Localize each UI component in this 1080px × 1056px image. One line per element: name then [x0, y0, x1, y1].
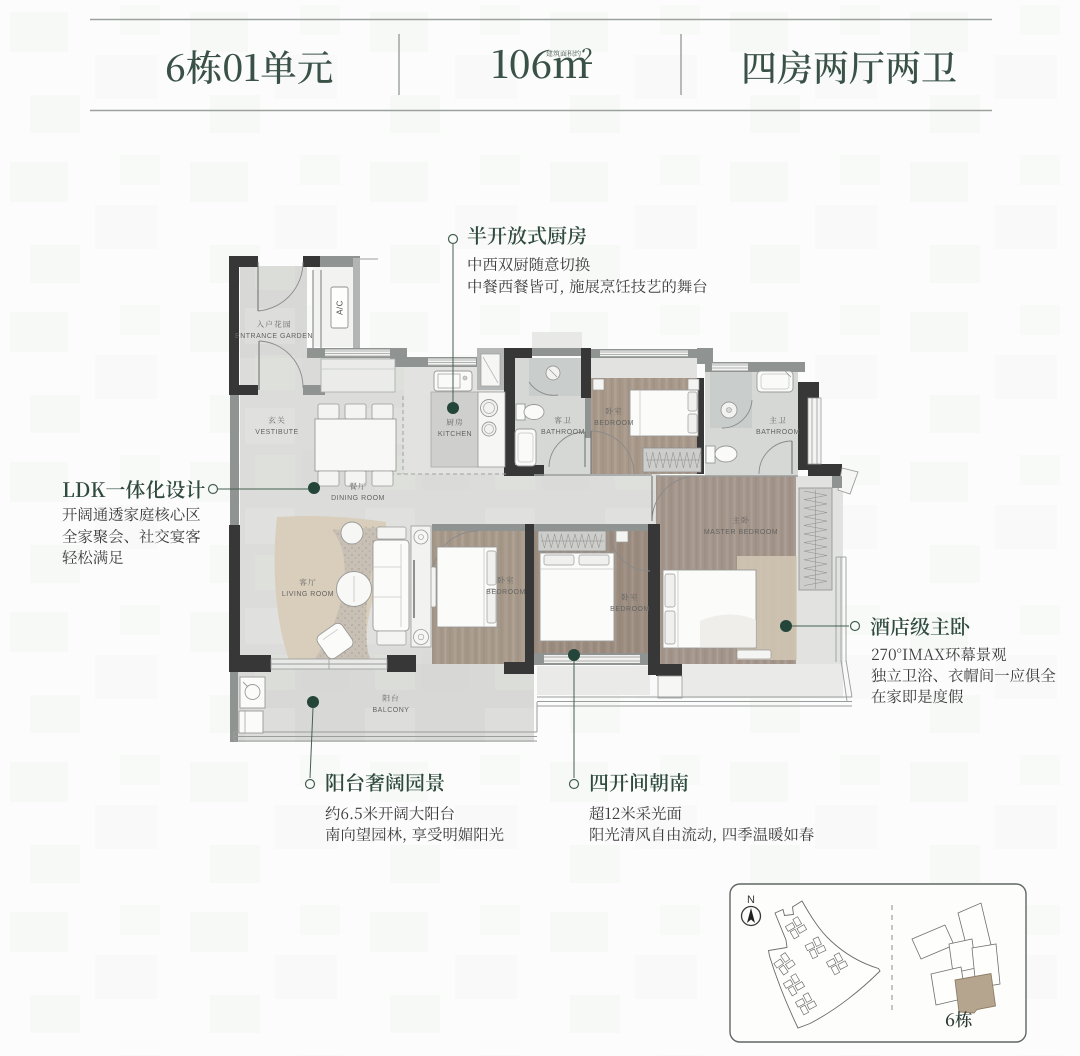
svg-text:BATHROOM: BATHROOM [756, 429, 800, 436]
svg-text:N: N [747, 894, 755, 906]
svg-text:BEDROOM: BEDROOM [486, 589, 526, 596]
svg-text:BEDROOM: BEDROOM [594, 420, 634, 427]
svg-text:BEDROOM: BEDROOM [610, 606, 650, 613]
svg-text:VESTIBUTE: VESTIBUTE [255, 429, 298, 436]
svg-text:A/C: A/C [336, 300, 345, 315]
svg-text:BATHROOM: BATHROOM [541, 429, 585, 436]
svg-text:LIVING ROOM: LIVING ROOM [282, 591, 334, 598]
svg-text:DINING ROOM: DINING ROOM [331, 495, 385, 502]
svg-text:MASTER BEDROOM: MASTER BEDROOM [704, 529, 778, 536]
svg-text:KITCHEN: KITCHEN [438, 431, 472, 438]
svg-text:BALCONY: BALCONY [373, 707, 410, 714]
svg-text:ENTRANCE GARDEN: ENTRANCE GARDEN [235, 333, 313, 340]
